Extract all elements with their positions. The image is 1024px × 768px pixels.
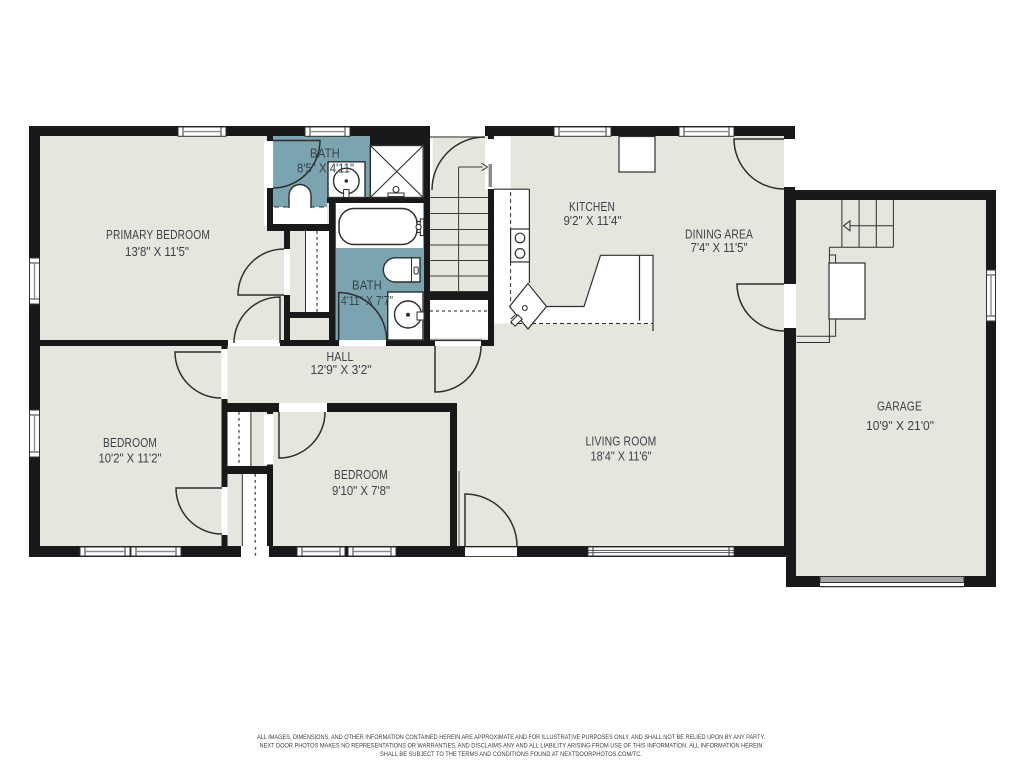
svg-text:18'4" X 11'6": 18'4" X 11'6" — [591, 450, 652, 464]
svg-text:10'2" X 11'2": 10'2" X 11'2" — [99, 451, 162, 465]
svg-text:GARAGE: GARAGE — [877, 399, 922, 414]
svg-text:HALL: HALL — [327, 349, 354, 364]
svg-text:BEDROOM: BEDROOM — [103, 435, 157, 450]
svg-text:9'10" X 7'8": 9'10" X 7'8" — [332, 484, 390, 498]
svg-text:BATH: BATH — [310, 146, 340, 161]
svg-text:7'4" X 11'5": 7'4" X 11'5" — [691, 241, 748, 255]
svg-text:SHALL BE SUBJECT TO THE TERMS: SHALL BE SUBJECT TO THE TERMS AND CONDIT… — [380, 751, 642, 758]
svg-text:8'5" X 4'11": 8'5" X 4'11" — [297, 162, 354, 176]
svg-text:NEXT DOOR PHOTOS MAKES NO REPR: NEXT DOOR PHOTOS MAKES NO REPRESENTATION… — [260, 743, 763, 750]
svg-text:9'2" X 11'4": 9'2" X 11'4" — [564, 214, 622, 228]
svg-text:DINING AREA: DINING AREA — [685, 227, 753, 242]
svg-text:BATH: BATH — [352, 278, 382, 293]
svg-text:LIVING ROOM: LIVING ROOM — [586, 434, 657, 449]
svg-text:BEDROOM: BEDROOM — [334, 467, 388, 482]
svg-text:PRIMARY BEDROOM: PRIMARY BEDROOM — [106, 227, 210, 242]
svg-text:KITCHEN: KITCHEN — [569, 199, 615, 214]
svg-text:10'9" X 21'0": 10'9" X 21'0" — [866, 419, 934, 433]
svg-text:4'11" X 7'7": 4'11" X 7'7" — [341, 294, 393, 308]
svg-text:12'9" X 3'2": 12'9" X 3'2" — [311, 363, 372, 377]
svg-text:ALL IMAGES, DIMENSIONS, AND OT: ALL IMAGES, DIMENSIONS, AND OTHER INFORM… — [257, 734, 765, 741]
svg-text:13'8" X 11'5": 13'8" X 11'5" — [125, 245, 189, 259]
